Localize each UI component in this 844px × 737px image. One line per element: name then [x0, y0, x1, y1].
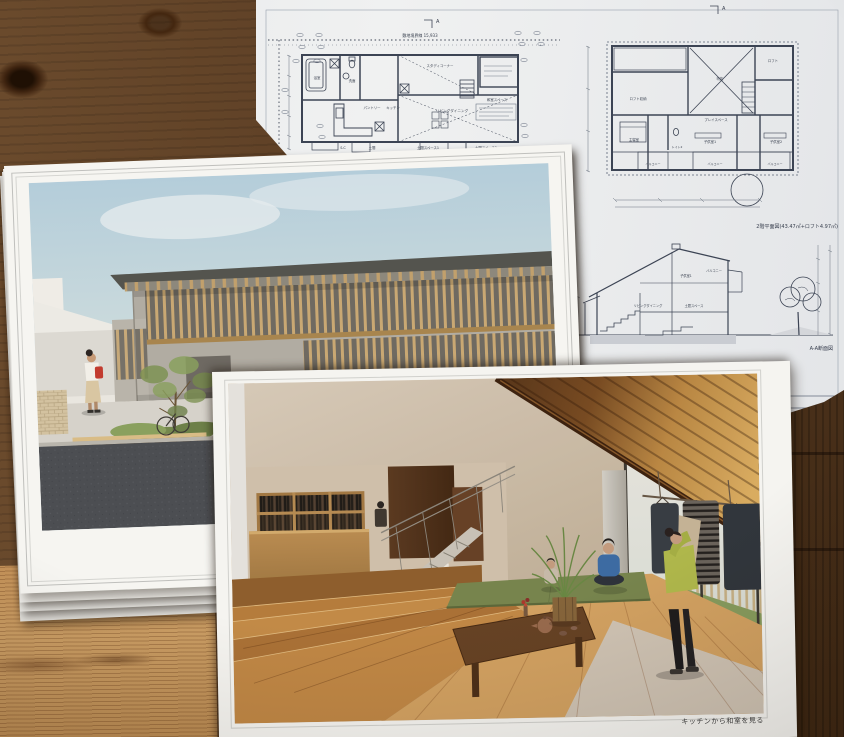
- dimension-bubbles: [282, 31, 544, 139]
- svg-text:吹抜: 吹抜: [717, 76, 724, 81]
- section-marker-a: A: [436, 19, 440, 25]
- section-labels: 子供室1 バルコニー リビングダイニング 土間スペース: [634, 269, 722, 308]
- stone-wall: [37, 390, 69, 435]
- interior-walls-2f: [612, 46, 793, 170]
- svg-text:リビングダイニング: リビングダイニング: [634, 303, 663, 308]
- svg-text:プレイスペース: プレイスペース: [704, 117, 728, 122]
- svg-text:主寝室: 主寝室: [629, 137, 640, 142]
- wood-knot: [138, 8, 182, 38]
- section-building: [583, 244, 730, 335]
- svg-text:ロフト収納: ロフト収納: [630, 96, 648, 101]
- site-boundary-label: 敷地境界線 15,933: [402, 32, 438, 38]
- svg-text:リビングダイニング: リビングダイニング: [436, 108, 469, 113]
- floor2-caption: 2階平面図(43.47㎡+ロフト4.97㎡): [756, 223, 838, 230]
- svg-text:バルコニー: バルコニー: [706, 269, 722, 273]
- svg-text:パントリー: パントリー: [363, 105, 381, 110]
- tree-symbol-plan: [731, 174, 763, 206]
- section-caption: A-A断面図: [810, 345, 833, 352]
- plan-fixtures: [306, 55, 518, 155]
- red-bag: [95, 366, 103, 378]
- floor-plan-1f: 敷地境界線 15,933 A: [268, 19, 560, 155]
- section-marker-a-2f: A: [722, 6, 726, 12]
- svg-text:キッチン: キッチン: [386, 105, 400, 110]
- section-tree: [780, 277, 821, 335]
- svg-text:土間スペース: 土間スペース: [685, 303, 704, 308]
- exterior-walls-2f: [612, 46, 793, 170]
- floor-plan-2f: A: [586, 6, 838, 230]
- interior-rendering: [228, 374, 763, 724]
- svg-text:浴室: 浴室: [314, 75, 321, 80]
- section-dims: [576, 245, 832, 335]
- svg-text:バルコニー: バルコニー: [768, 162, 783, 166]
- interior-rendering-sheet: キッチンから和室を見る: [212, 361, 797, 737]
- section-interior: [600, 252, 742, 335]
- photo-architectural-documents-on-table: 敷地境界線 15,933 A: [0, 0, 844, 737]
- dimension-chain: [287, 55, 291, 150]
- svg-text:洗面: 洗面: [349, 78, 356, 83]
- svg-text:子供室1: 子供室1: [680, 273, 692, 278]
- svg-text:バルコニー: バルコニー: [708, 162, 723, 166]
- svg-text:土間: 土間: [369, 145, 376, 150]
- svg-text:バルコニー: バルコニー: [646, 162, 661, 166]
- vignette: [228, 374, 763, 724]
- svg-text:ロフト: ロフト: [768, 58, 778, 63]
- svg-text:S.C: S.C: [340, 146, 346, 150]
- svg-text:子供室2: 子供室2: [770, 139, 782, 144]
- svg-text:トイレ2: トイレ2: [672, 145, 683, 149]
- svg-text:スタディコーナー: スタディコーナー: [427, 63, 454, 68]
- svg-text:和室スペース: 和室スペース: [487, 97, 508, 102]
- svg-text:子供室1: 子供室1: [704, 139, 716, 144]
